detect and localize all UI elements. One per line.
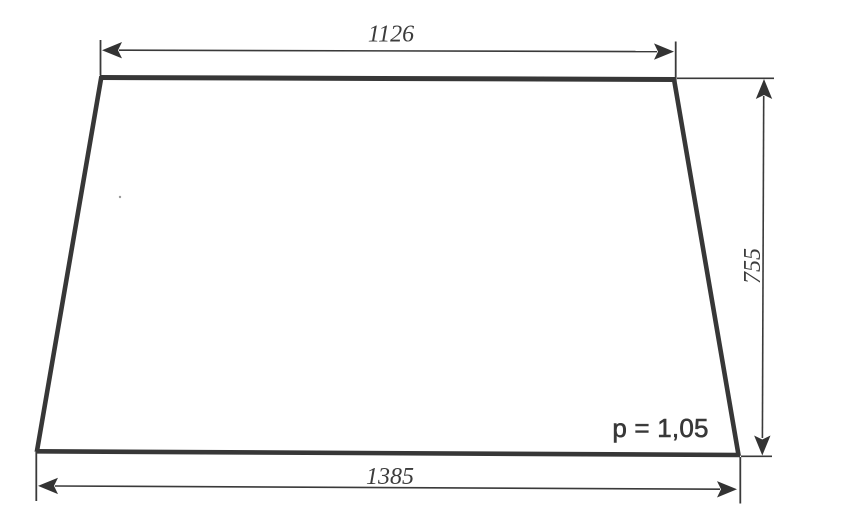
svg-text:755: 755: [740, 248, 766, 284]
svg-text:1385: 1385: [366, 464, 414, 490]
svg-text:p = 1,05: p = 1,05: [612, 413, 708, 443]
svg-text:1126: 1126: [368, 22, 414, 48]
